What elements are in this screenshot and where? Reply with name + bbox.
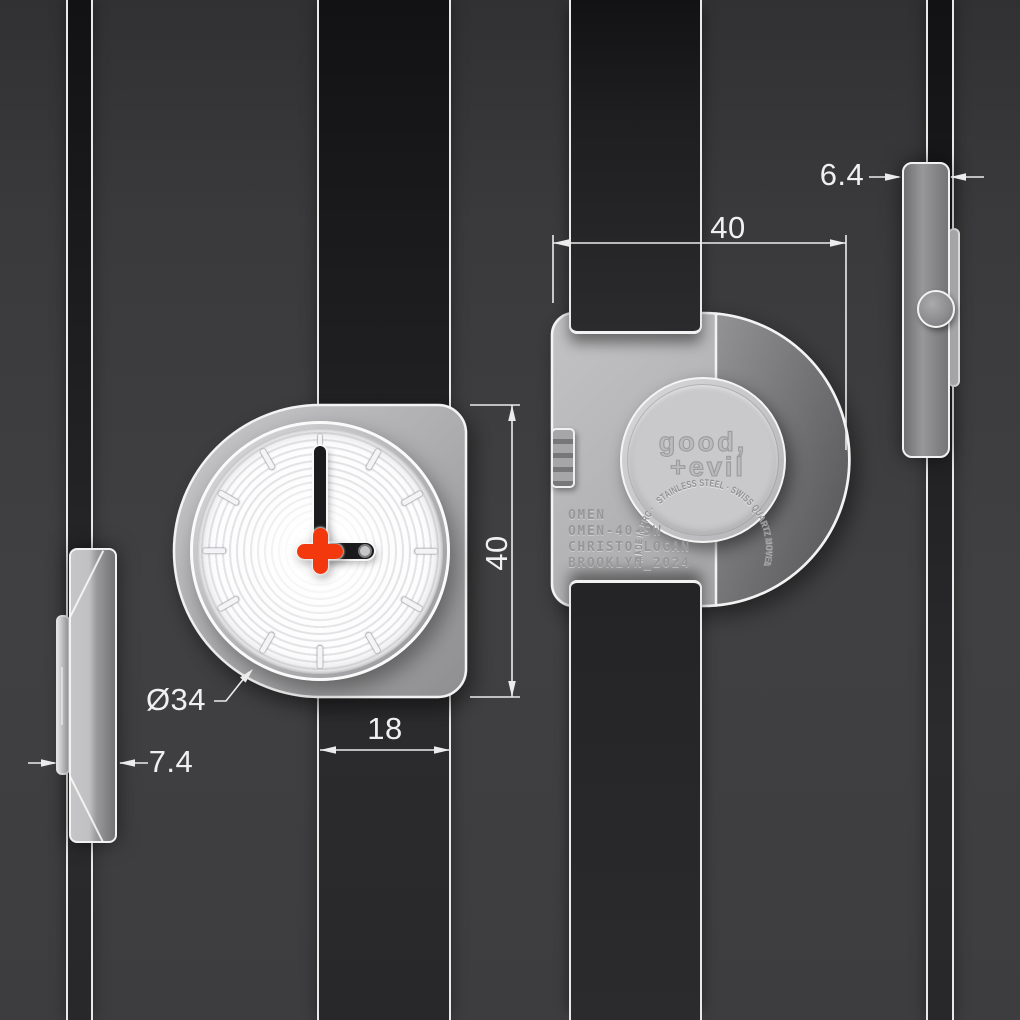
dim-strap-width <box>320 746 450 754</box>
dim-label-strap-width: 18 <box>367 711 402 747</box>
dim-dial-leader <box>214 669 253 701</box>
dim-back-width <box>553 235 846 450</box>
dim-label-left-thickness: 7.4 <box>149 744 194 780</box>
dim-left-thickness <box>28 759 148 767</box>
dim-right-thickness <box>869 173 984 181</box>
dimension-overlay <box>0 0 1020 1020</box>
dim-label-right-thickness: 6.4 <box>820 157 865 193</box>
dim-label-back-width: 40 <box>710 210 745 246</box>
drawing-canvas: STAINLESS STEEL · SWISS QUARTZ MOVEMENT … <box>0 0 1020 1020</box>
dim-label-front-height: 40 <box>479 535 515 570</box>
dim-label-dial-diameter: Ø34 <box>146 682 206 718</box>
